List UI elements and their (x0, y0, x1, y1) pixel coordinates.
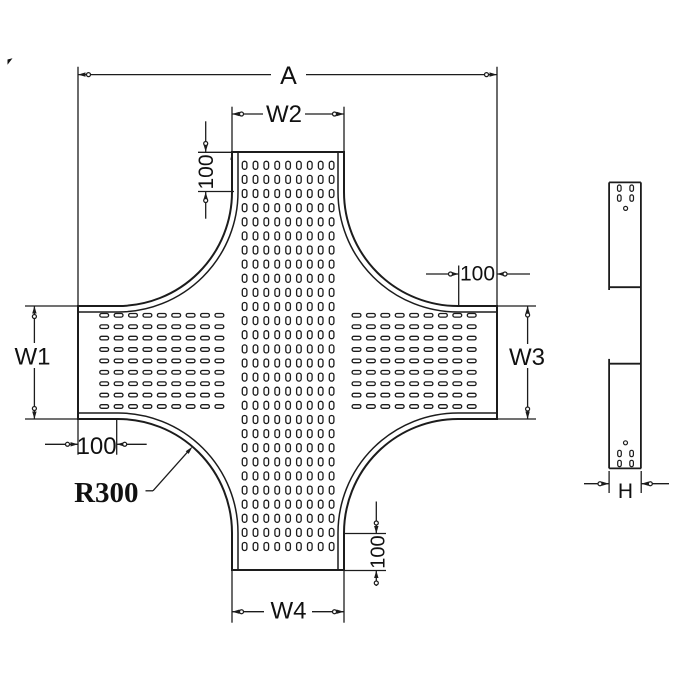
svg-text:W1: W1 (15, 343, 51, 370)
svg-text:W4: W4 (271, 597, 307, 624)
svg-text:A: A (280, 62, 297, 90)
svg-text:W3: W3 (509, 344, 545, 371)
svg-text:100: 100 (77, 433, 117, 460)
svg-text:W2: W2 (266, 101, 302, 128)
svg-text:100: 100 (367, 535, 389, 568)
svg-text:H: H (618, 480, 633, 503)
svg-text:R300: R300 (74, 477, 138, 509)
svg-text:100: 100 (195, 154, 218, 189)
svg-text:100: 100 (460, 263, 495, 286)
